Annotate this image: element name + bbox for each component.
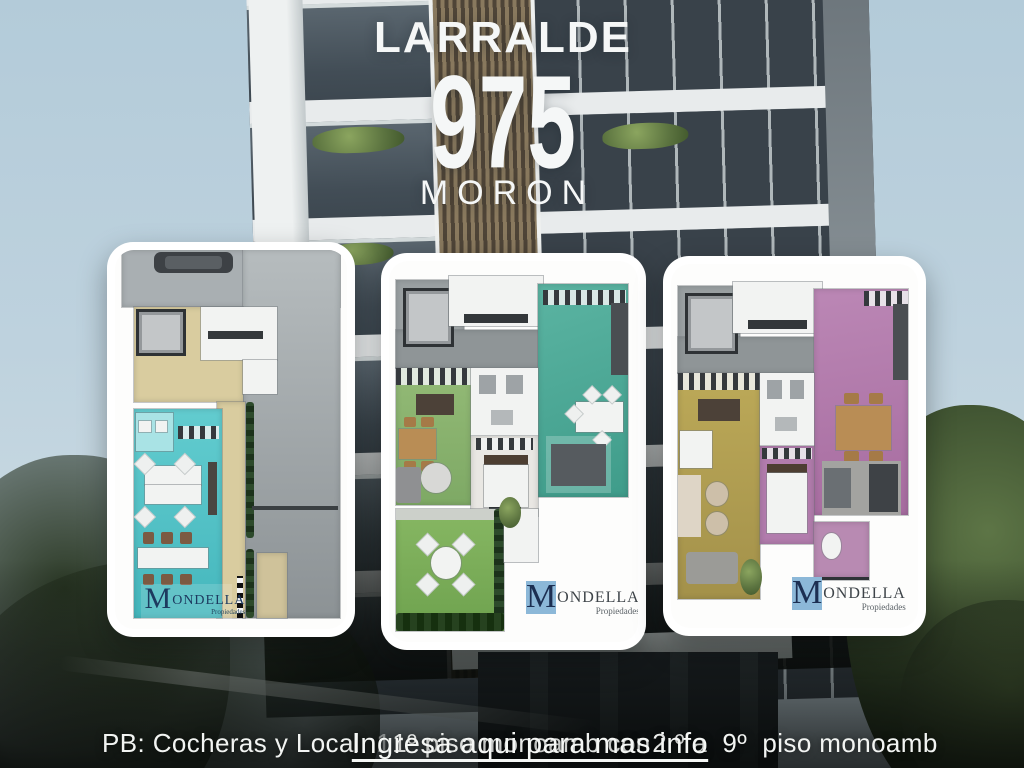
chair — [161, 532, 173, 543]
kitchen-island — [416, 394, 453, 415]
floorplan-pb: M ONDELLA Propiedades — [115, 250, 347, 629]
title-number: 975 — [104, 60, 903, 186]
wood-table — [399, 429, 436, 459]
terrace-pavers — [396, 509, 503, 520]
wardrobe — [476, 438, 533, 449]
title-block: LARRALDE 975 MORON — [0, 16, 1015, 210]
terrace-plants — [396, 613, 503, 630]
table — [680, 431, 712, 467]
plant-icon — [499, 497, 521, 527]
headboard — [484, 455, 529, 465]
brand-name: ONDELLA — [557, 590, 638, 606]
toilet-icon — [139, 421, 151, 432]
toilet-icon — [790, 380, 805, 398]
hedge — [246, 549, 254, 617]
chair — [844, 393, 859, 404]
chair — [421, 417, 433, 427]
floorplan-piso1: M ONDELLA Propiedades — [389, 261, 638, 642]
stairs-landing — [243, 360, 278, 394]
sink-icon — [491, 410, 513, 425]
car-icon — [154, 252, 233, 273]
rear-walkway — [257, 553, 287, 617]
chair — [143, 532, 155, 543]
flyer-canvas: LARRALDE 975 MORON — [0, 0, 1024, 768]
pouf — [706, 482, 728, 506]
balcony-chair — [822, 533, 842, 558]
brand-initial: M — [145, 586, 172, 612]
dining-table — [576, 402, 623, 432]
brand-subtitle: Propiedades — [596, 607, 638, 616]
lounge-chair — [686, 552, 738, 585]
wardrobe — [762, 448, 811, 459]
more-info-link[interactable]: Ingresa aqui para mas info — [18, 728, 1024, 761]
wood-table — [836, 406, 890, 450]
shower-icon — [506, 375, 523, 394]
washer-icon — [479, 375, 496, 394]
gate-rail — [252, 506, 338, 511]
elevator-icon — [685, 293, 738, 354]
brand-subtitle: Propiedades — [211, 609, 245, 616]
sofa — [869, 464, 899, 511]
chair — [404, 417, 416, 427]
brand-initial: M — [792, 577, 822, 609]
elevator-icon — [403, 288, 454, 347]
brand-logo: M ONDELLA Propiedades — [526, 581, 628, 627]
kitchen-counter — [678, 373, 760, 389]
terrace-plants — [494, 509, 504, 631]
sofa — [396, 467, 421, 503]
bed — [767, 473, 807, 533]
closet-slot — [464, 314, 529, 322]
bathroom — [136, 413, 173, 451]
floorplan-card-piso2a9: M ONDELLA Propiedades — [663, 256, 926, 636]
office-desk — [145, 485, 201, 504]
floorplan-card-piso1: M ONDELLA Propiedades — [381, 253, 646, 650]
kitchenette — [178, 426, 220, 439]
closet-slot — [748, 320, 807, 329]
brand-name: ONDELLA — [172, 594, 245, 608]
stairs-slot — [208, 331, 264, 339]
floorplan-card-pb: M ONDELLA Propiedades — [107, 242, 355, 637]
office-desk — [145, 466, 201, 485]
sofa — [551, 444, 606, 486]
headboard — [767, 464, 807, 473]
brand-logo: M ONDELLA Propiedades — [792, 577, 906, 621]
kitchen-counter — [396, 368, 471, 385]
brand-initial: M — [526, 581, 556, 613]
chair — [869, 393, 884, 404]
hedge — [246, 402, 254, 538]
shower-icon — [767, 380, 782, 398]
elevator-icon — [136, 309, 186, 357]
pouf — [706, 512, 728, 536]
brand-subtitle: Propiedades — [862, 603, 906, 612]
cabinet — [208, 462, 217, 515]
chair — [180, 532, 192, 543]
sofa — [678, 475, 700, 537]
logo-square: M — [792, 577, 822, 610]
kitchen-column — [611, 303, 628, 375]
terrace-table — [431, 547, 461, 579]
kitchen-column — [893, 304, 908, 380]
meeting-table — [138, 548, 208, 569]
brand-logo: M ONDELLA Propiedades — [141, 584, 233, 624]
logo-square: M — [526, 581, 556, 614]
sink-icon — [775, 417, 797, 432]
tv-unit — [824, 468, 851, 508]
sink-icon — [156, 421, 168, 432]
kitchen-island — [698, 399, 740, 421]
floorplan-piso2a9: M ONDELLA Propiedades — [671, 264, 918, 628]
brand-name: ONDELLA — [823, 586, 906, 602]
